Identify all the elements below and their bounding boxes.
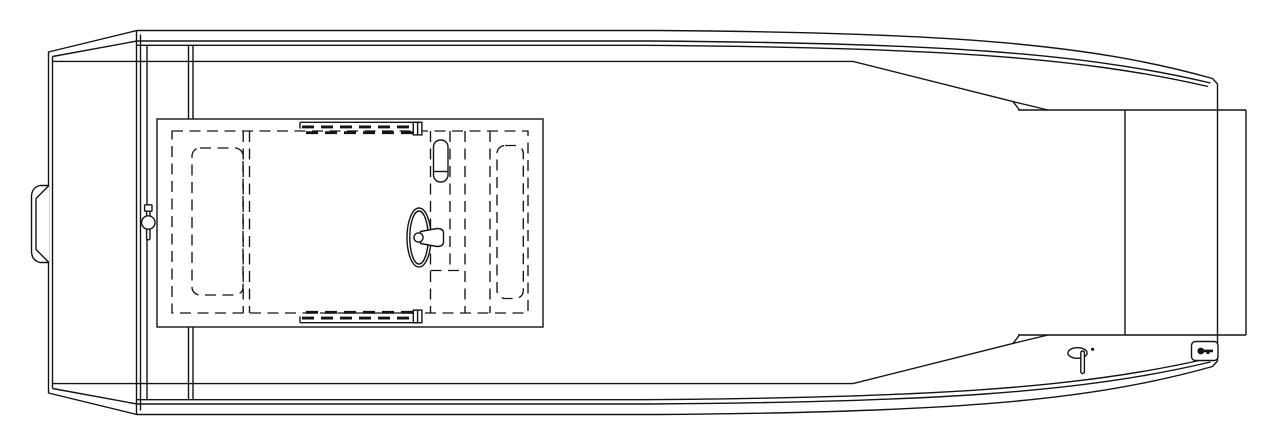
throttle-control [434,140,449,182]
latch-head [145,205,152,211]
throttle-pad [434,140,449,182]
latch-ring [142,216,155,229]
keyhole-plate [1192,342,1219,361]
boat-plan-drawing [0,0,1280,448]
center-console [157,119,543,327]
steering-wheel-nut [414,233,423,242]
motor-mount-bracket [32,186,50,263]
bow-light-stem [1081,351,1085,374]
console-outline [157,119,543,327]
boat-plan-page [0,0,1280,448]
steering-wheel-hub [421,229,444,247]
bow-light-dot [1091,348,1094,351]
